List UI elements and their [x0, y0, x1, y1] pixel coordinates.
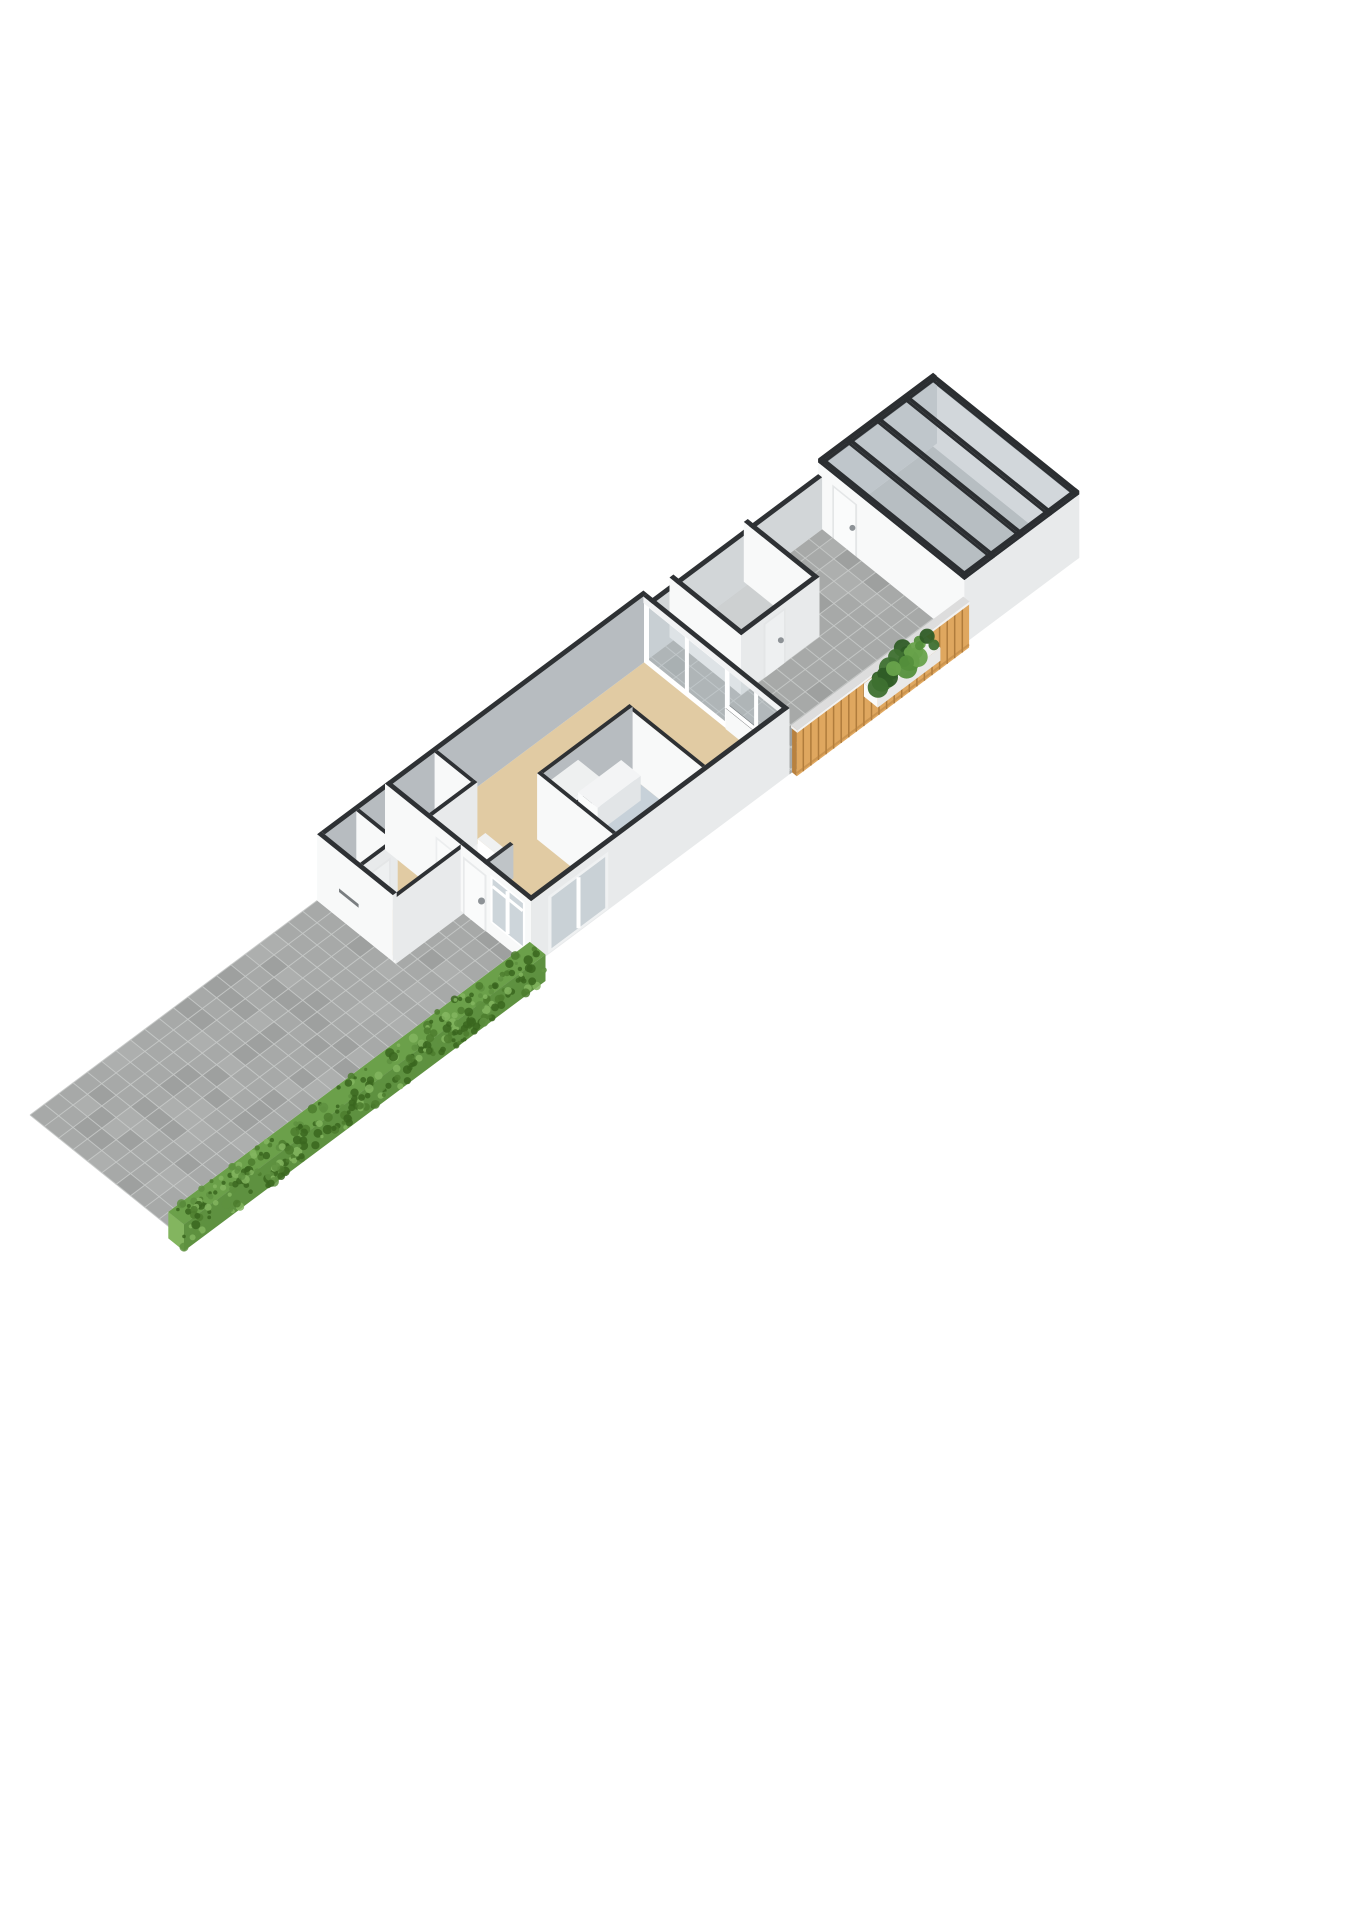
hedge-foliage-dot [504, 987, 512, 995]
hedge-foliage-dot [290, 1127, 299, 1136]
hedge-foliage-dot [180, 1243, 189, 1252]
hedge-foliage-dot [293, 1121, 298, 1126]
hedge-foliage-dot [229, 1182, 233, 1186]
hedge-foliage-dot [300, 1137, 308, 1145]
hedge-foliage-dot [377, 1083, 386, 1092]
hedge-foliage-dot [340, 1104, 345, 1109]
hedge-foliage-dot [210, 1179, 214, 1183]
hedge-foliage-dot [300, 1129, 308, 1137]
hedge-foliage-dot [394, 1075, 400, 1081]
hedge-foliage-dot [286, 1159, 290, 1163]
hedge-foliage-dot [371, 1100, 380, 1109]
shrub [899, 655, 914, 670]
hedge-foliage-dot [385, 1083, 391, 1089]
hedge-foliage-dot [207, 1216, 211, 1220]
hedge-foliage-dot [336, 1105, 340, 1109]
hedge-foliage-dot [488, 985, 492, 989]
hedge-foliage-dot [414, 1045, 418, 1049]
hedge-foliage-dot [533, 950, 540, 957]
shrub [886, 661, 901, 676]
hedge-foliage-dot [220, 1185, 226, 1191]
door-handle [849, 525, 855, 531]
hedge-foliage-dot [190, 1206, 197, 1213]
hedge-foliage-dot [519, 973, 523, 977]
fence-end [792, 725, 797, 776]
hedge-foliage-dot [323, 1125, 332, 1134]
hedge-foliage-dot [458, 997, 462, 1001]
hedge-foliage-dot [541, 967, 547, 973]
hedge-foliage-dot [425, 1058, 432, 1065]
hedge-foliage-dot [259, 1152, 263, 1156]
hedge-foliage-dot [393, 1065, 401, 1073]
hedge-foliage-dot [270, 1138, 274, 1142]
hedge-foliage-dot [308, 1104, 317, 1113]
hedge-foliage-dot [475, 982, 483, 990]
hedge-foliage-dot [360, 1077, 366, 1083]
hedge-foliage-dot [465, 996, 472, 1003]
hedge-foliage-dot [454, 998, 458, 1002]
hedge-foliage-dot [285, 1145, 294, 1154]
hedge-foliage-dot [434, 1009, 440, 1015]
hedge-foliage-dot [271, 1162, 280, 1171]
hedge-foliage-dot [426, 1047, 433, 1054]
hedge-foliage-dot [469, 993, 474, 998]
hedge-foliage-dot [412, 1073, 416, 1077]
hedge-foliage-dot [461, 1039, 465, 1043]
hedge-foliage-dot [527, 964, 536, 973]
hedge-foliage-dot [518, 967, 522, 971]
hedge-foliage-dot [250, 1150, 257, 1157]
hedge-foliage-dot [298, 1144, 302, 1148]
hedge-foliage-dot [452, 1038, 456, 1042]
door-handle [478, 898, 485, 905]
hedge-foliage-dot [222, 1181, 226, 1185]
hedge-foliage-dot [213, 1200, 219, 1206]
hedge-foliage-dot [221, 1200, 230, 1209]
hedge-foliage-dot [358, 1094, 365, 1101]
hedge-foliage-dot [483, 994, 488, 999]
hedge-foliage-dot [406, 1054, 415, 1063]
hedge-foliage-dot [336, 1085, 340, 1089]
hedge-foliage-dot [509, 970, 515, 976]
hedge-foliage-dot [489, 989, 495, 995]
hedge-foliage-dot [389, 1052, 398, 1061]
hedge-foliage-dot [463, 1031, 469, 1037]
hedge-foliage-dot [234, 1169, 239, 1174]
hedge-foliage-dot [228, 1193, 232, 1197]
shrub [868, 677, 889, 698]
floorplan-render [0, 0, 1358, 1920]
hedge-foliage-dot [426, 1034, 434, 1042]
hedge-foliage-dot [424, 1027, 431, 1034]
hedge-foliage-dot [528, 977, 536, 985]
hedge-foliage-dot [375, 1072, 383, 1080]
hedge-foliage-dot [343, 1114, 351, 1122]
hedge-foliage-dot [232, 1181, 239, 1188]
floorplan-page [0, 0, 1358, 1920]
hedge-foliage-dot [438, 1049, 444, 1055]
hedge-foliage-dot [335, 1109, 339, 1113]
hedge-foliage-dot [437, 1039, 441, 1043]
hedge-foliage-dot [454, 1020, 461, 1027]
hedge-foliage-dot [177, 1199, 186, 1208]
hedge-foliage-dot [457, 1041, 461, 1045]
hedge-foliage-dot [263, 1152, 270, 1159]
hedge-foliage-dot [492, 982, 499, 989]
hedge-foliage-dot [203, 1215, 208, 1220]
hedge-foliage-dot [245, 1167, 251, 1173]
hedge-foliage-dot [213, 1190, 217, 1194]
hedge-foliage-dot [452, 1012, 458, 1018]
hedge-foliage-dot [208, 1194, 214, 1200]
hedge-foliage-dot [446, 1021, 452, 1027]
hedge-foliage-dot [246, 1172, 249, 1175]
hedge-foliage-dot [356, 1102, 363, 1109]
hedge-foliage-dot [347, 1110, 351, 1114]
hedge-foliage-dot [409, 1034, 418, 1043]
hedge-foliage-dot [404, 1077, 411, 1084]
hedge-foliage-dot [365, 1093, 371, 1099]
hedge-foliage-dot [324, 1113, 333, 1122]
hedge-foliage-dot [403, 1065, 412, 1074]
hedge-foliage-dot [267, 1180, 274, 1187]
ground [30, 901, 531, 1233]
shrub [929, 640, 940, 651]
hedge-foliage-dot [298, 1124, 303, 1129]
hedge-foliage-dot [444, 1034, 453, 1043]
hedge-foliage-dot [397, 1083, 403, 1089]
hedge-foliage-dot [365, 1084, 374, 1093]
hedge-foliage-dot [213, 1223, 216, 1226]
hedge-foliage-dot [491, 1004, 499, 1012]
hedge-foliage-dot [498, 976, 504, 982]
hedge-foliage-dot [182, 1235, 186, 1239]
hedge-foliage-dot [319, 1103, 329, 1113]
hedge-foliage-dot [198, 1186, 204, 1192]
hedge-foliage-dot [190, 1234, 196, 1240]
hedge-foliage-dot [472, 1023, 480, 1031]
hedge-foliage-dot [230, 1163, 237, 1170]
hedge-foliage-dot [515, 962, 518, 965]
hedge-foliage-dot [463, 1021, 470, 1028]
hedge-foliage-dot [382, 1093, 386, 1097]
hedge-foliage-dot [248, 1189, 253, 1194]
hedge-foliage-dot [505, 960, 513, 968]
hedge-foliage-dot [219, 1176, 224, 1181]
hedge-foliage-dot [331, 1126, 336, 1131]
hedge-foliage-dot [279, 1143, 286, 1150]
hedge-foliage-dot [514, 983, 521, 990]
hedge-foliage-dot [213, 1184, 217, 1188]
door-handle [778, 637, 784, 643]
hedge-foliage-dot [296, 1157, 300, 1161]
hedge-foliage-dot [479, 1018, 488, 1027]
hedge-foliage-dot [316, 1120, 323, 1127]
hedge-foliage-dot [254, 1168, 260, 1174]
hedge-foliage-dot [311, 1141, 319, 1149]
hedge-foliage-dot [354, 1076, 357, 1079]
hedge-foliage-dot [194, 1213, 200, 1219]
hedge-foliage-dot [521, 988, 530, 997]
hedge-foliage-dot [343, 1125, 347, 1129]
hedge-foliage-dot [233, 1200, 241, 1208]
hedge-foliage-dot [176, 1208, 180, 1212]
hedge-foliage-dot [452, 1029, 458, 1035]
hedge-foliage-dot [488, 1015, 492, 1019]
hedge-foliage-dot [255, 1145, 260, 1150]
hedge-foliage-dot [191, 1220, 200, 1229]
hedge-foliage-dot [457, 1007, 464, 1014]
hedge-foliage-dot [464, 1008, 473, 1017]
hedge-foliage-dot [367, 1076, 374, 1083]
street-facade-entrance-south-face [393, 892, 397, 961]
hedge-foliage-dot [429, 1020, 433, 1024]
hedge-foliage-dot [396, 1050, 399, 1053]
hedge-foliage-dot [248, 1158, 256, 1166]
hedge-foliage-dot [345, 1079, 353, 1087]
hedge-foliage-dot [516, 978, 521, 983]
hedge-foliage-dot [498, 994, 504, 1000]
hedge-foliage-dot [478, 993, 483, 998]
hedge-foliage-dot [228, 1207, 233, 1212]
hedge-foliage-dot [397, 1043, 401, 1047]
shrub [915, 641, 924, 650]
hedge-foliage-dot [238, 1173, 245, 1180]
hedge-foliage-dot [442, 1012, 451, 1021]
hedge-foliage-dot [524, 955, 533, 964]
hedge-foliage-dot [511, 951, 520, 960]
hedge-foliage-dot [264, 1139, 270, 1145]
hedge-foliage-dot [471, 1001, 475, 1005]
hedge-foliage-dot [348, 1094, 352, 1098]
hedge-foliage-dot [205, 1204, 212, 1211]
hedge-foliage-dot [187, 1204, 191, 1208]
hedge-foliage-dot [320, 1135, 323, 1138]
hedge-foliage-dot [476, 1001, 485, 1010]
hedge-foliage-dot [364, 1068, 367, 1071]
